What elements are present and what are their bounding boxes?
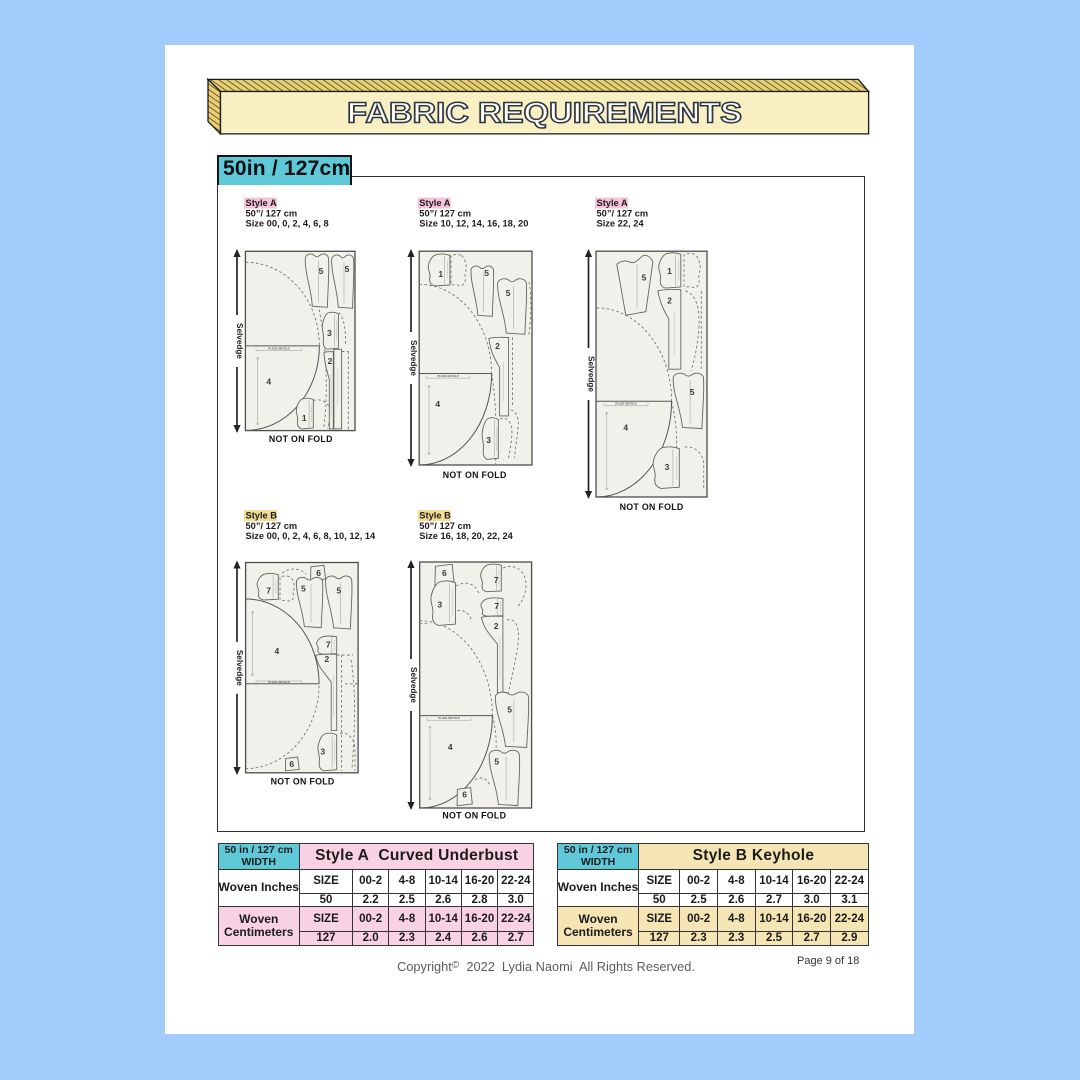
svg-text:PLACE ON FOLD: PLACE ON FOLD [615, 402, 636, 406]
svg-text:Style A: Style A [246, 198, 277, 208]
svg-text:Size 16, 18, 20, 22, 24: Size 16, 18, 20, 22, 24 [419, 531, 513, 541]
svg-text:Selvedge: Selvedge [235, 323, 244, 359]
svg-text:50”/ 127 cm: 50”/ 127 cm [597, 208, 649, 218]
svg-text:2: 2 [325, 654, 330, 664]
svg-text:5: 5 [494, 757, 499, 767]
svg-text:5: 5 [690, 387, 695, 397]
svg-text:6: 6 [442, 568, 447, 578]
svg-text:4: 4 [448, 742, 453, 752]
svg-text:50”/ 127 cm: 50”/ 127 cm [246, 208, 298, 218]
svg-text:Size 10, 12, 14, 16, 18, 20: Size 10, 12, 14, 16, 18, 20 [419, 219, 528, 229]
svg-text:NOT ON FOLD: NOT ON FOLD [271, 777, 335, 787]
svg-text:6: 6 [316, 568, 321, 578]
svg-text:NOT ON FOLD: NOT ON FOLD [443, 470, 507, 480]
svg-text:Selvedge: Selvedge [409, 340, 418, 376]
svg-text:7: 7 [266, 586, 271, 596]
svg-text:Style A: Style A [419, 198, 450, 208]
svg-text:Selvedge: Selvedge [235, 650, 244, 686]
svg-text:Size 00, 0, 2, 4, 6, 8: Size 00, 0, 2, 4, 6, 8 [246, 219, 329, 229]
svg-text:7: 7 [494, 601, 499, 611]
svg-text:PLACE ON FOLD: PLACE ON FOLD [268, 346, 289, 350]
svg-text:1: 1 [438, 269, 443, 279]
svg-text:50”/ 127 cm: 50”/ 127 cm [419, 208, 471, 218]
svg-text:3: 3 [320, 747, 325, 757]
svg-text:3: 3 [665, 462, 670, 472]
svg-text:5: 5 [345, 264, 350, 274]
svg-text:4: 4 [623, 422, 628, 432]
svg-text:3: 3 [437, 600, 442, 610]
svg-text:4: 4 [266, 377, 271, 387]
svg-text:6: 6 [289, 759, 294, 769]
svg-text:FABRIC REQUIREMENTS: FABRIC REQUIREMENTS [347, 98, 742, 130]
svg-text:4: 4 [275, 646, 280, 656]
svg-text:5: 5 [507, 705, 512, 715]
svg-text:NOT ON FOLD: NOT ON FOLD [620, 502, 684, 512]
svg-text:6: 6 [462, 790, 467, 800]
svg-text:Style B: Style B [419, 511, 451, 521]
svg-text:NOT ON FOLD: NOT ON FOLD [269, 434, 333, 444]
svg-text:7: 7 [494, 575, 499, 585]
svg-text:PLACE ON FOLD: PLACE ON FOLD [438, 716, 459, 720]
svg-text:5: 5 [319, 266, 324, 276]
svg-text:NOT ON FOLD: NOT ON FOLD [442, 811, 506, 821]
svg-text:5: 5 [484, 268, 489, 278]
svg-text:PLACE ON FOLD: PLACE ON FOLD [437, 374, 458, 378]
svg-text:4: 4 [435, 399, 440, 409]
svg-text:2: 2 [494, 621, 499, 631]
svg-text:Style B: Style B [246, 511, 278, 521]
svg-text:3: 3 [486, 435, 491, 445]
svg-text:5: 5 [506, 288, 511, 298]
svg-text:PLACE ON FOLD: PLACE ON FOLD [268, 680, 289, 684]
svg-text:7: 7 [326, 640, 331, 650]
svg-text:5: 5 [337, 585, 342, 595]
svg-text:1: 1 [302, 413, 307, 423]
svg-text:Size 00, 0, 2, 4, 6, 8, 10, 12: Size 00, 0, 2, 4, 6, 8, 10, 12, 14 [246, 531, 377, 541]
svg-text:50”/ 127 cm: 50”/ 127 cm [246, 521, 298, 531]
svg-text:Selvedge: Selvedge [587, 356, 596, 392]
svg-text:2: 2 [667, 295, 672, 305]
svg-text:5: 5 [301, 583, 306, 593]
svg-text:Selvedge: Selvedge [409, 667, 418, 703]
svg-text:50”/ 127 cm: 50”/ 127 cm [419, 521, 471, 531]
svg-text:3: 3 [327, 328, 332, 338]
svg-text:Style A: Style A [597, 198, 628, 208]
svg-text:2: 2 [495, 341, 500, 351]
svg-text:Size 22, 24: Size 22, 24 [597, 219, 645, 229]
svg-text:2: 2 [328, 356, 333, 366]
svg-text:5: 5 [642, 273, 647, 283]
svg-text:1: 1 [667, 266, 672, 276]
